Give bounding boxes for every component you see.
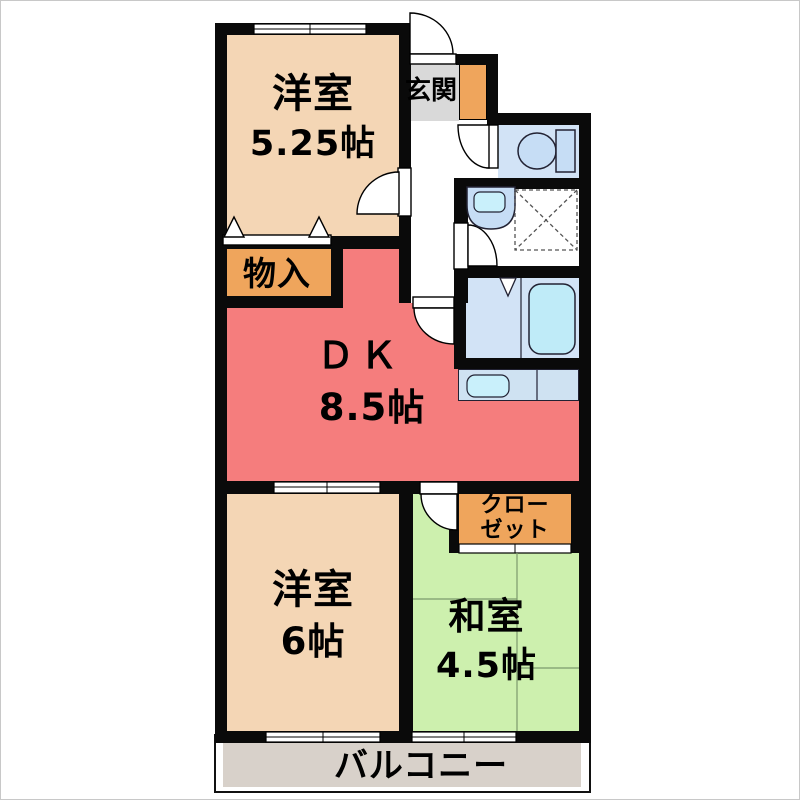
room-label: 洋室 — [227, 567, 399, 613]
room-label: ゼット — [459, 518, 571, 544]
floorplan-canvas: 洋室 5.25帖 玄関 物入 ＤＫ 8.5帖 クロー ゼット 洋室 6帖 和室 … — [0, 0, 800, 800]
wall — [215, 236, 411, 249]
room-label: ＤＫ — [281, 331, 439, 379]
wall — [215, 731, 591, 743]
kitchen-counter — [458, 369, 579, 401]
wall — [454, 266, 466, 369]
bathroom-floor — [466, 278, 579, 358]
wall — [579, 113, 591, 743]
door-swing-icon — [410, 13, 456, 64]
room-area-label: 8.5帖 — [291, 385, 453, 429]
toilet-room-floor — [498, 125, 579, 178]
room-area-label: 5.25帖 — [227, 123, 399, 165]
shoe-cabinet — [459, 64, 487, 120]
washbasin-icon — [467, 187, 515, 229]
room-label: クロー — [459, 493, 571, 519]
wall — [399, 23, 411, 303]
hallway-floor — [411, 237, 454, 303]
room-area-label: 4.5帖 — [404, 645, 569, 687]
wall — [571, 483, 581, 553]
washroom-floor — [466, 237, 579, 267]
room-label: 和室 — [404, 595, 569, 637]
wall — [215, 23, 411, 35]
wall — [454, 178, 591, 189]
wall — [215, 23, 227, 743]
wall — [449, 481, 459, 553]
door-swing-icon — [458, 125, 498, 168]
room-label: 玄関 — [403, 75, 459, 107]
wall — [454, 266, 591, 278]
room-area-label: 6帖 — [227, 619, 399, 663]
room-label: 物入 — [223, 250, 331, 296]
wall — [454, 358, 591, 369]
room-label: 洋室 — [227, 71, 399, 117]
wall — [487, 113, 591, 125]
wall — [215, 296, 343, 308]
room-label: バルコニー — [251, 745, 591, 787]
